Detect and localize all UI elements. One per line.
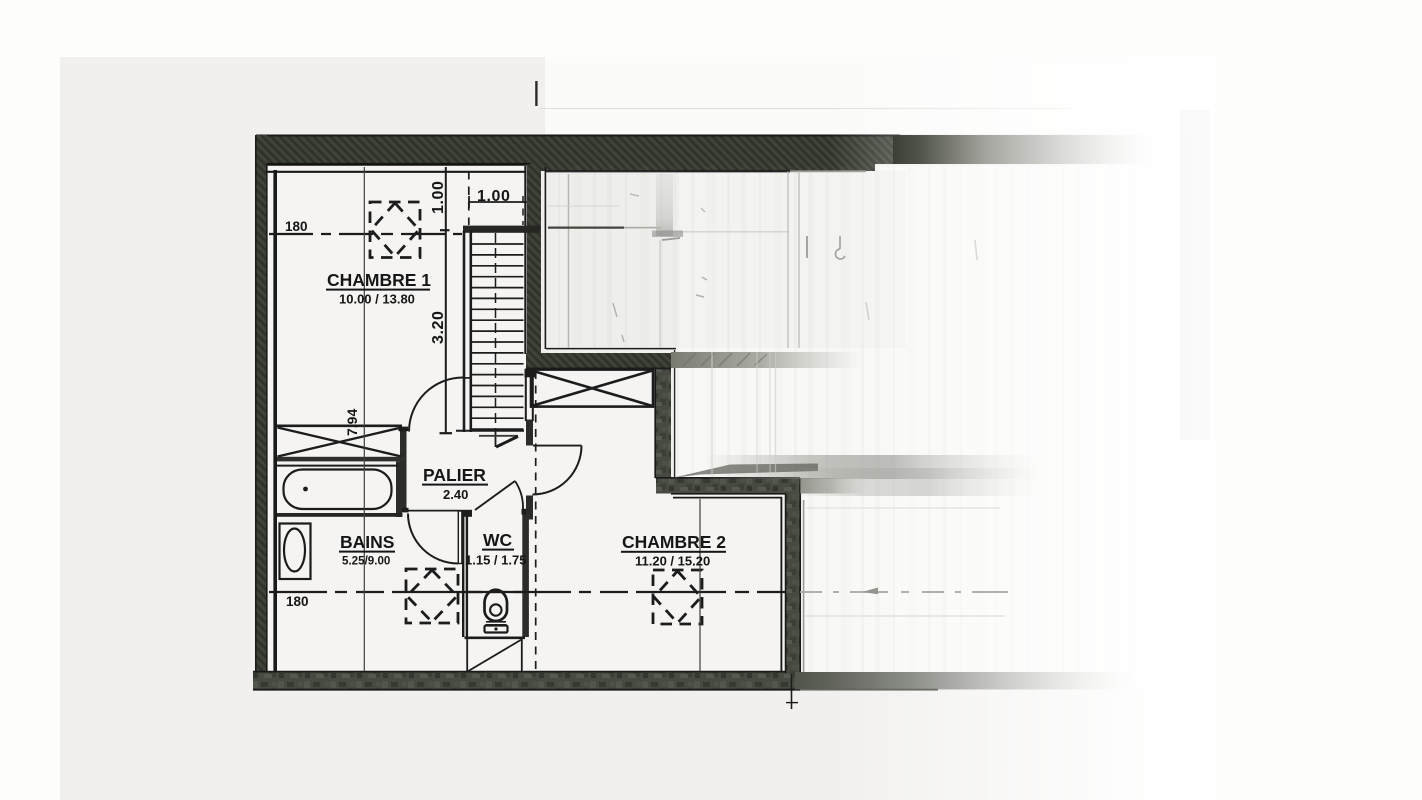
svg-text:BAINS: BAINS <box>340 532 394 552</box>
svg-text:CHAMBRE 1: CHAMBRE 1 <box>327 270 431 290</box>
svg-text:11.20 / 15.20: 11.20 / 15.20 <box>635 554 710 569</box>
svg-text:WC: WC <box>483 530 513 550</box>
svg-text:1.00: 1.00 <box>430 180 447 214</box>
svg-text:3.20: 3.20 <box>430 310 447 344</box>
svg-text:10.00 / 13.80: 10.00 / 13.80 <box>339 292 415 307</box>
svg-text:1.00: 1.00 <box>477 188 511 205</box>
svg-text:7.94: 7.94 <box>344 409 360 436</box>
svg-text:180: 180 <box>285 219 308 234</box>
svg-text:5.25/9.00: 5.25/9.00 <box>342 555 390 568</box>
svg-text:180: 180 <box>286 594 309 609</box>
svg-text:PALIER: PALIER <box>423 465 486 485</box>
svg-text:2.40: 2.40 <box>443 487 468 502</box>
svg-text:1.15 / 1.75: 1.15 / 1.75 <box>465 553 526 568</box>
svg-text:CHAMBRE 2: CHAMBRE 2 <box>622 532 726 552</box>
